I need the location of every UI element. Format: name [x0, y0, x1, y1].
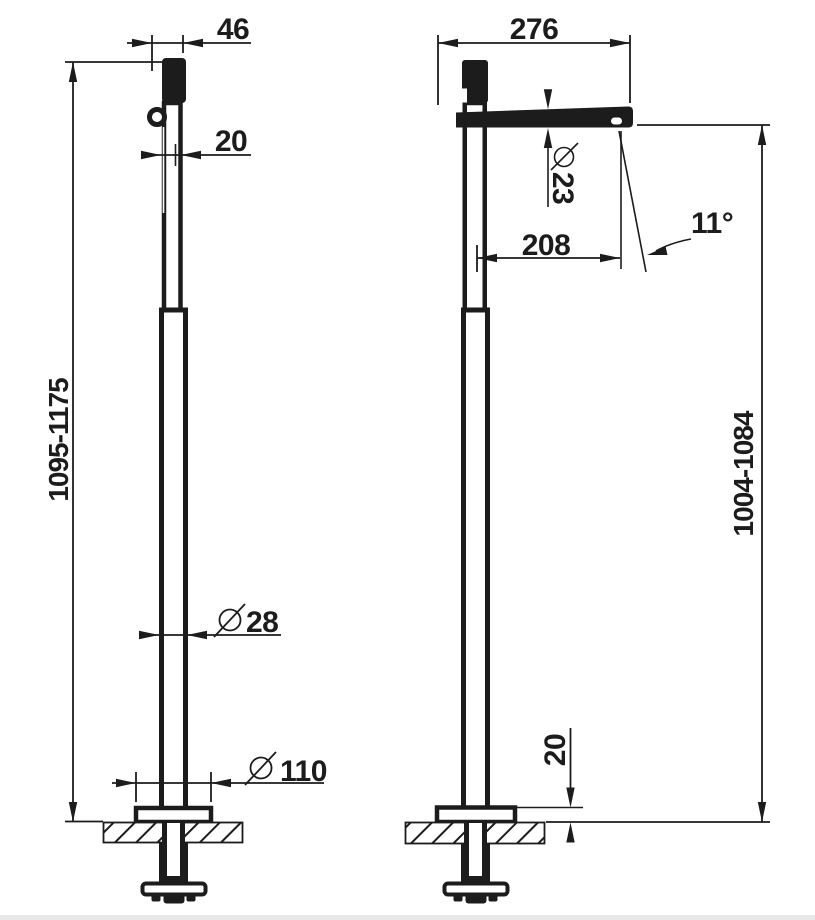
dim-label-upper-column: 20: [215, 125, 247, 158]
side-mounting-nub-right: [489, 893, 498, 902]
dim-label-spout-projection: 208: [522, 229, 571, 262]
diameter-icon: [245, 752, 276, 785]
dim-arrow-down: [544, 89, 552, 109]
dim-height-range-front: 1095-1175: [43, 62, 162, 822]
angle-slant-line: [619, 131, 646, 272]
dim-arrow-top: [69, 62, 77, 82]
dim-arrow-left: [438, 39, 458, 47]
side-base-flange: [437, 808, 515, 823]
dim-height-range-side: 1004-1084: [546, 125, 770, 822]
dim-arrow-right: [183, 39, 203, 47]
front-upper-column: [164, 103, 181, 310]
dim-spout-angle: 11°: [619, 131, 733, 272]
dim-label-column-diameter: 28: [246, 606, 278, 639]
technical-drawing-svg: 46 20 1095-1175 28: [0, 0, 815, 915]
dim-arrow-bottom: [69, 802, 77, 822]
dim-spout-diameter: 23: [544, 89, 579, 207]
side-under-floor-column: [467, 823, 485, 878]
dim-arrow-down: [566, 788, 574, 808]
dim-label-handle-width: 46: [217, 13, 249, 46]
front-under-floor-column: [165, 823, 183, 878]
dim-arrow-right: [181, 151, 201, 159]
dim-arrow-right: [187, 631, 207, 639]
side-aerator: [611, 118, 622, 125]
drawing-canvas: 46 20 1095-1175 28: [0, 0, 815, 915]
side-upper-column: [465, 103, 485, 310]
dim-arrow-up: [544, 128, 552, 148]
front-view: 46 20 1095-1175 28: [43, 13, 327, 904]
dim-arrow-right: [610, 39, 630, 47]
dim-arrow-right: [600, 254, 620, 262]
dim-label-height-side: 1004-1084: [728, 410, 759, 536]
dim-label-base-diameter: 110: [280, 755, 327, 788]
dim-label-spout-angle: 11°: [691, 207, 733, 240]
dim-arrow-left: [139, 631, 159, 639]
dim-arrow-up: [566, 823, 574, 843]
front-holder-ring: [150, 110, 165, 125]
side-mounting-nub-left: [454, 893, 463, 902]
side-handle-notch: [462, 89, 468, 103]
dim-label-height-front: 1095-1175: [43, 378, 74, 502]
dim-label-spout-diameter: 23: [546, 172, 579, 204]
dim-arrow-right: [211, 779, 231, 787]
front-handle: [162, 58, 186, 103]
angle-arrow: [646, 247, 667, 259]
front-lower-column: [162, 310, 186, 879]
side-view: 276 23 208 11°: [406, 13, 771, 904]
side-lower-column: [464, 310, 488, 879]
dim-arrow-left: [141, 151, 161, 159]
side-mounting-nub-center: [466, 893, 487, 904]
dim-arrow-left: [116, 779, 136, 787]
diameter-icon: [551, 143, 578, 170]
dim-label-base-plate-height: 20: [539, 734, 572, 766]
dim-upper-column-width: 20: [141, 125, 251, 166]
front-mounting-nub-left: [152, 893, 161, 902]
dim-arrow-left: [132, 39, 152, 47]
front-mounting-nub-right: [187, 893, 196, 902]
dim-arrow-bottom: [758, 802, 766, 822]
front-mounting-nub-center: [164, 893, 185, 904]
dim-arrow-top: [758, 125, 766, 145]
dim-label-total-reach: 276: [510, 13, 559, 46]
dim-base-diameter: 110: [112, 752, 327, 802]
front-base-flange: [136, 808, 211, 822]
diameter-icon: [214, 604, 245, 637]
